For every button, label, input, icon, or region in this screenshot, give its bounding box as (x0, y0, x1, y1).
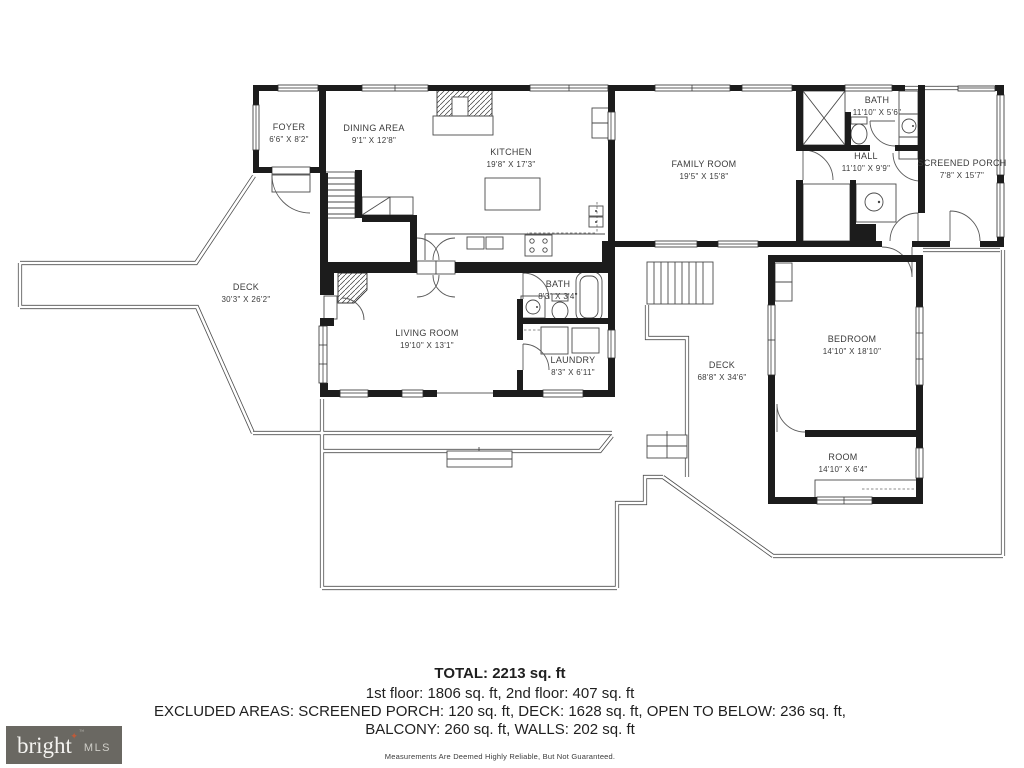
brightmls-logo: bright ✦ ™ MLS (6, 726, 122, 764)
room-label-bath-mid: BATH (546, 279, 571, 289)
room-label-hall: HALL (854, 151, 878, 161)
room-label-bath-upper: BATH (865, 95, 890, 105)
kitchen-counter (425, 108, 610, 260)
windows (253, 85, 995, 504)
room-dims-deck-mid: 68'8" X 34'6" (697, 373, 746, 382)
deck-outline-main (253, 250, 1003, 588)
room-dims-kitchen: 19'8" X 17'3" (486, 160, 535, 169)
star-icon: ✦ (70, 732, 78, 741)
foyer-entry-door (272, 167, 310, 213)
room-label-room: ROOM (828, 452, 857, 462)
stairs-deck-upper (647, 262, 713, 304)
room-dims-deck-left: 30'3" X 26'2" (221, 295, 270, 304)
room-dims-living: 19'10" X 13'1" (400, 341, 454, 350)
summary-excluded-2: BALCONY: 260 sq. ft, WALLS: 202 sq. ft (0, 721, 1000, 739)
shower (803, 91, 845, 145)
bedroom-door (777, 404, 805, 432)
room-label-deck-mid: DECK (709, 360, 735, 370)
room-dims-room: 14'10" X 6'4" (818, 465, 867, 474)
room-dims-bedroom: 14'10" X 18'10" (823, 347, 882, 356)
logo-brand-text: bright (17, 733, 72, 758)
room-dims-foyer: 6'6" X 8'2" (269, 135, 309, 144)
room-dims-bath-mid: 8'3" X 3'4" (538, 292, 578, 301)
room-label-kitchen: KITCHEN (490, 147, 532, 157)
room-label-family: FAMILY ROOM (672, 159, 737, 169)
kitchen-living-double-door (417, 238, 455, 297)
trademark-icon: ™ (79, 730, 84, 735)
room-label-bedroom: BEDROOM (828, 334, 877, 344)
room-label-porch: SCREENED PORCH (917, 158, 1006, 168)
room-label-dining: DINING AREA (343, 123, 404, 133)
bedroom-shelves (775, 263, 792, 301)
kitchen-island (485, 178, 540, 210)
room-dims-laundry: 8'3" X 6'11" (551, 368, 595, 377)
stairs-dining (325, 172, 413, 218)
room-label-laundry: LAUNDRY (551, 355, 596, 365)
summary-block: TOTAL: 2213 sq. ft 1st floor: 1806 sq. f… (0, 665, 1000, 761)
summary-total: TOTAL: 2213 sq. ft (0, 665, 1000, 682)
disclaimer-text: Measurements Are Deemed Highly Reliable,… (0, 752, 1000, 761)
room-label-foyer: FOYER (273, 122, 306, 132)
room-label-deck-left: DECK (233, 282, 259, 292)
stairs-deck-lower (647, 431, 687, 458)
walls (253, 85, 1004, 504)
fireplace-kitchen (433, 90, 493, 135)
logo-suffix-text: MLS (84, 742, 111, 754)
summary-excluded-1: EXCLUDED AREAS: SCREENED PORCH: 120 sq. … (0, 703, 1000, 721)
room-dims-bath-upper: 11'10" X 5'6" (853, 108, 902, 117)
fireplace-living (338, 273, 367, 303)
room-dims-porch: 7'8" X 15'7" (940, 171, 984, 180)
room-label-living: LIVING ROOM (395, 328, 458, 338)
room-dims-hall: 11'10" X 9'9" (842, 164, 891, 173)
room-dims-dining: 9'1" X 12'8" (352, 136, 396, 145)
floor-plan: FOYER 6'6" X 8'2" DINING AREA 9'1" X 12'… (0, 0, 1024, 768)
room-dims-family: 19'5" X 15'8" (679, 172, 728, 181)
deck-outline-left (20, 176, 254, 433)
summary-floors: 1st floor: 1806 sq. ft, 2nd floor: 407 s… (0, 685, 1000, 703)
